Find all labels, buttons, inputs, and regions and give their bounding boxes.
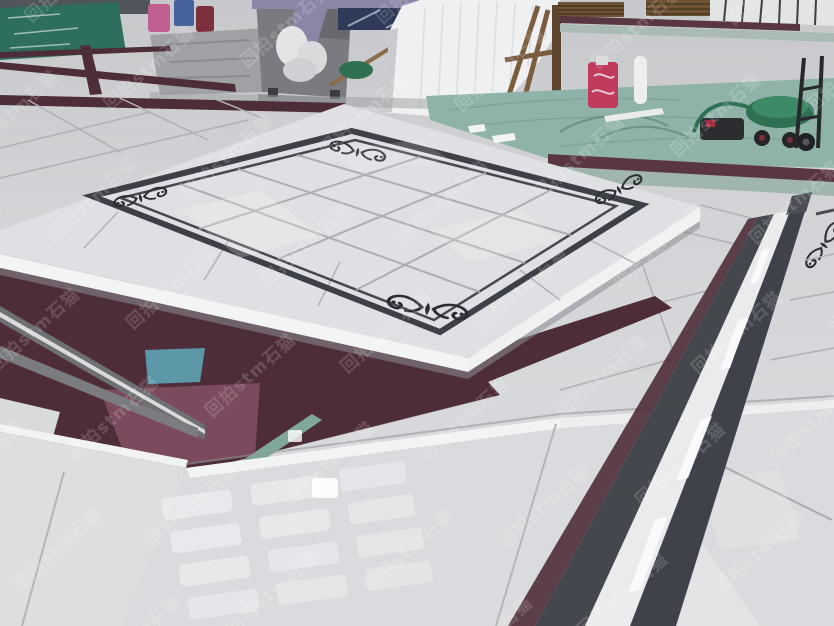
watermark-overlay [0, 0, 834, 626]
tile-showroom-photo: 回拍stm石猫 回拍stm石猫 [0, 0, 834, 626]
photo-canvas: 回拍stm石猫 回拍stm石猫 [0, 0, 834, 626]
